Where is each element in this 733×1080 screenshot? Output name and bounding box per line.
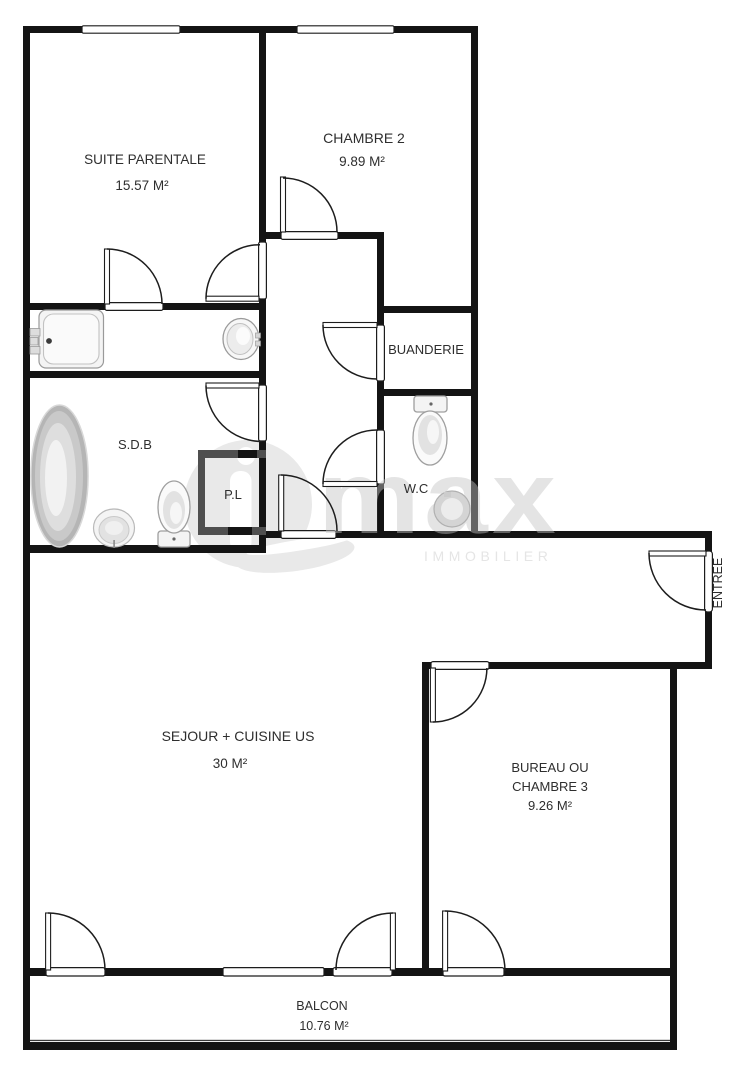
- svg-text:SUITE PARENTALE: SUITE PARENTALE: [84, 152, 206, 167]
- svg-text:IMMOBILIER: IMMOBILIER: [424, 548, 552, 564]
- svg-text:BUREAU OU: BUREAU OU: [511, 760, 588, 775]
- svg-text:W.C: W.C: [404, 481, 429, 496]
- svg-text:10.76 M²: 10.76 M²: [299, 1019, 348, 1033]
- svg-text:ENTREE: ENTREE: [711, 558, 725, 609]
- svg-text:30 M²: 30 M²: [213, 756, 248, 771]
- svg-text:SEJOUR + CUISINE US: SEJOUR + CUISINE US: [162, 728, 315, 744]
- svg-text:CHAMBRE 2: CHAMBRE 2: [323, 130, 405, 146]
- svg-text:CHAMBRE 3: CHAMBRE 3: [512, 779, 588, 794]
- svg-text:9.26 M²: 9.26 M²: [528, 798, 573, 813]
- svg-text:15.57 M²: 15.57 M²: [115, 178, 169, 193]
- svg-text:BUANDERIE: BUANDERIE: [388, 342, 464, 357]
- svg-text:9.89 M²: 9.89 M²: [339, 154, 385, 169]
- svg-text:BALCON: BALCON: [296, 999, 347, 1013]
- svg-text:P.L: P.L: [224, 487, 242, 502]
- svg-text:S.D.B: S.D.B: [118, 437, 152, 452]
